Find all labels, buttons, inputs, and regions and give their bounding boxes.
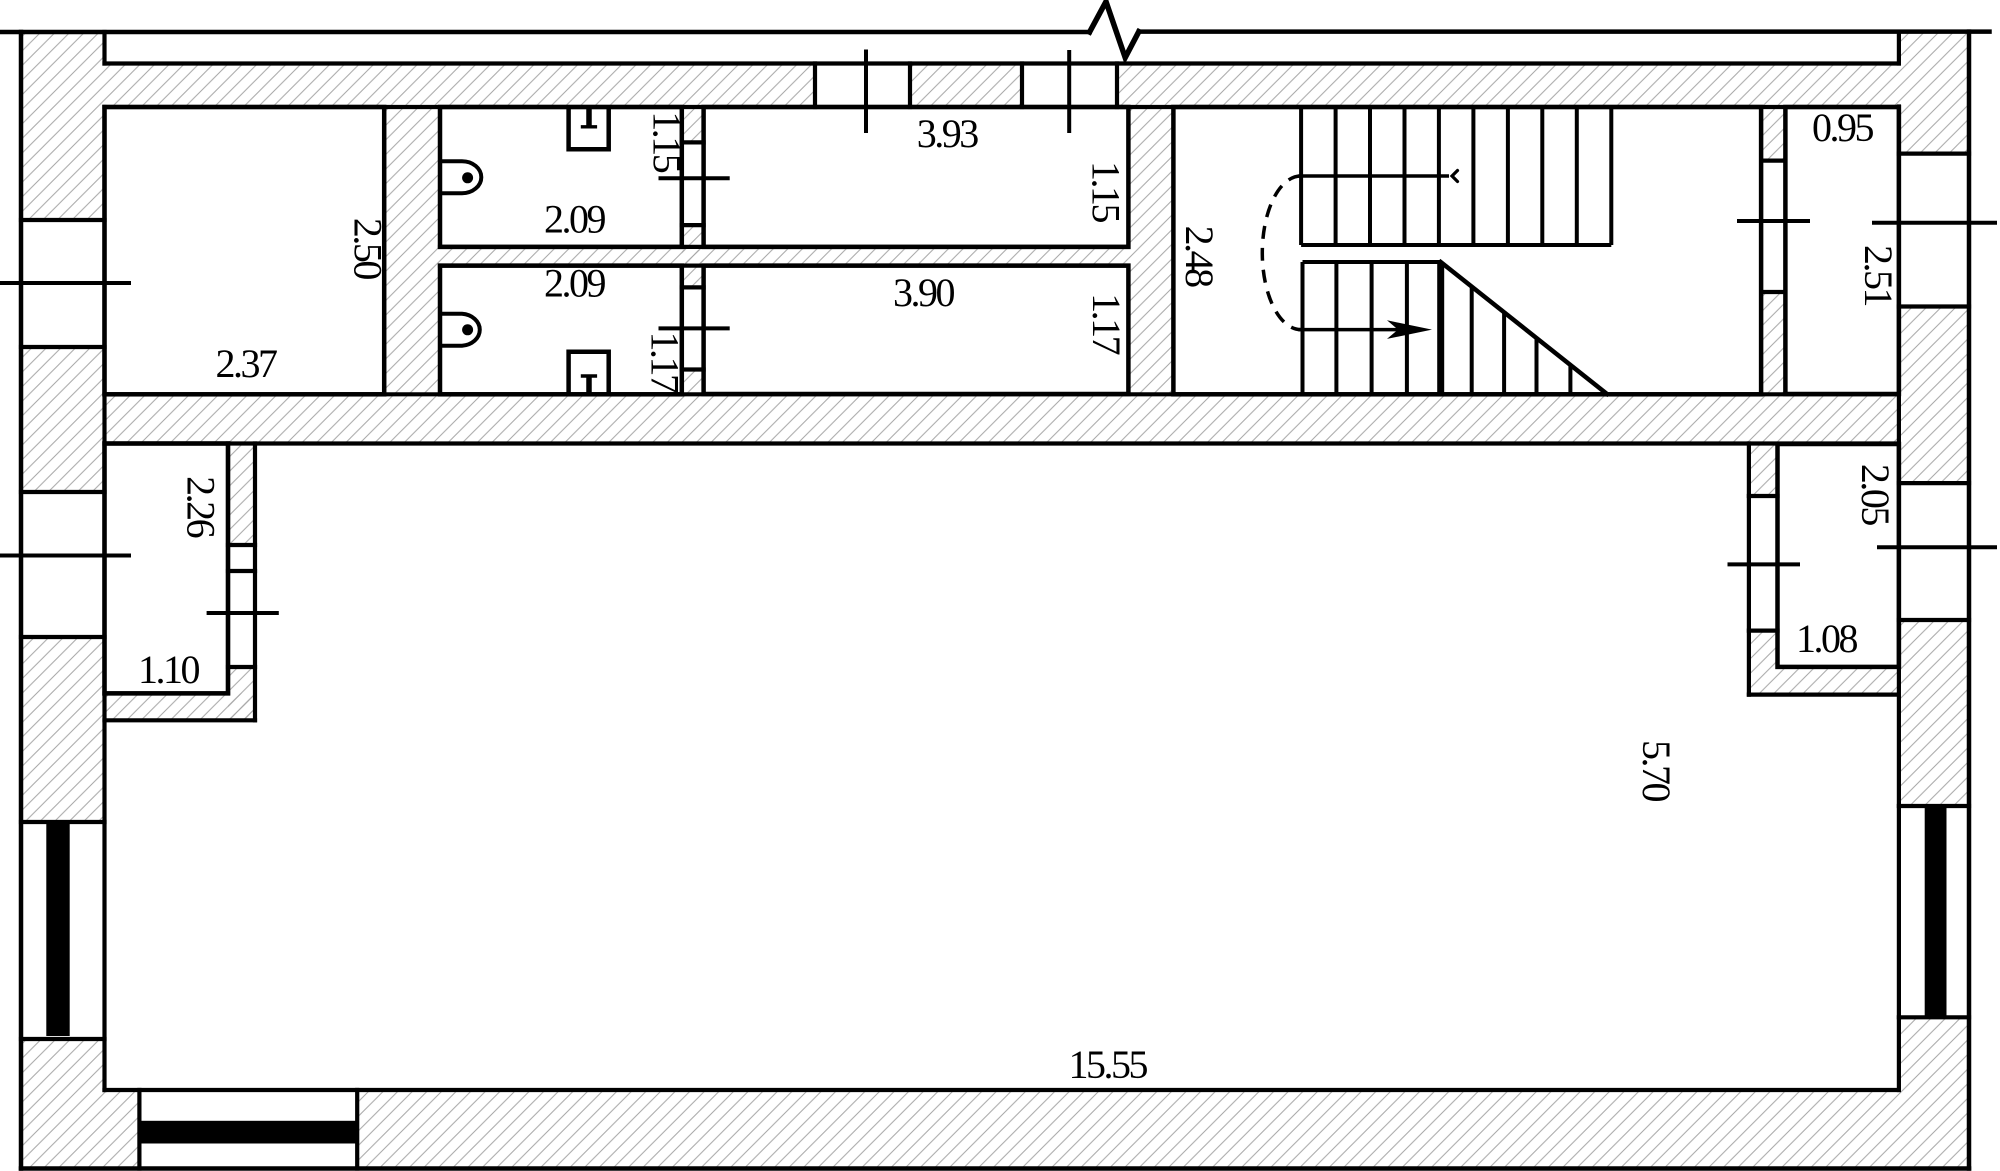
svg-text:3.93: 3.93 xyxy=(917,111,979,156)
svg-text:3.90: 3.90 xyxy=(893,270,955,315)
svg-text:2.48: 2.48 xyxy=(1177,226,1222,288)
svg-text:1.08: 1.08 xyxy=(1796,616,1858,661)
svg-text:0.95: 0.95 xyxy=(1812,105,1874,150)
svg-text:15.55: 15.55 xyxy=(1068,1042,1147,1087)
svg-text:1.15: 1.15 xyxy=(1083,161,1128,223)
svg-text:2.05: 2.05 xyxy=(1853,464,1898,526)
svg-text:1.10: 1.10 xyxy=(138,647,200,692)
svg-text:1.17: 1.17 xyxy=(1084,293,1129,355)
svg-text:2.37: 2.37 xyxy=(216,341,278,386)
svg-text:2.09: 2.09 xyxy=(544,261,606,306)
svg-text:1.17: 1.17 xyxy=(643,332,688,394)
svg-text:2.09: 2.09 xyxy=(544,197,606,242)
svg-text:2.51: 2.51 xyxy=(1856,245,1901,306)
svg-text:1.15: 1.15 xyxy=(644,111,689,173)
svg-text:2.50: 2.50 xyxy=(345,218,390,280)
svg-text:5.70: 5.70 xyxy=(1634,740,1679,802)
svg-text:2.26: 2.26 xyxy=(178,476,223,537)
